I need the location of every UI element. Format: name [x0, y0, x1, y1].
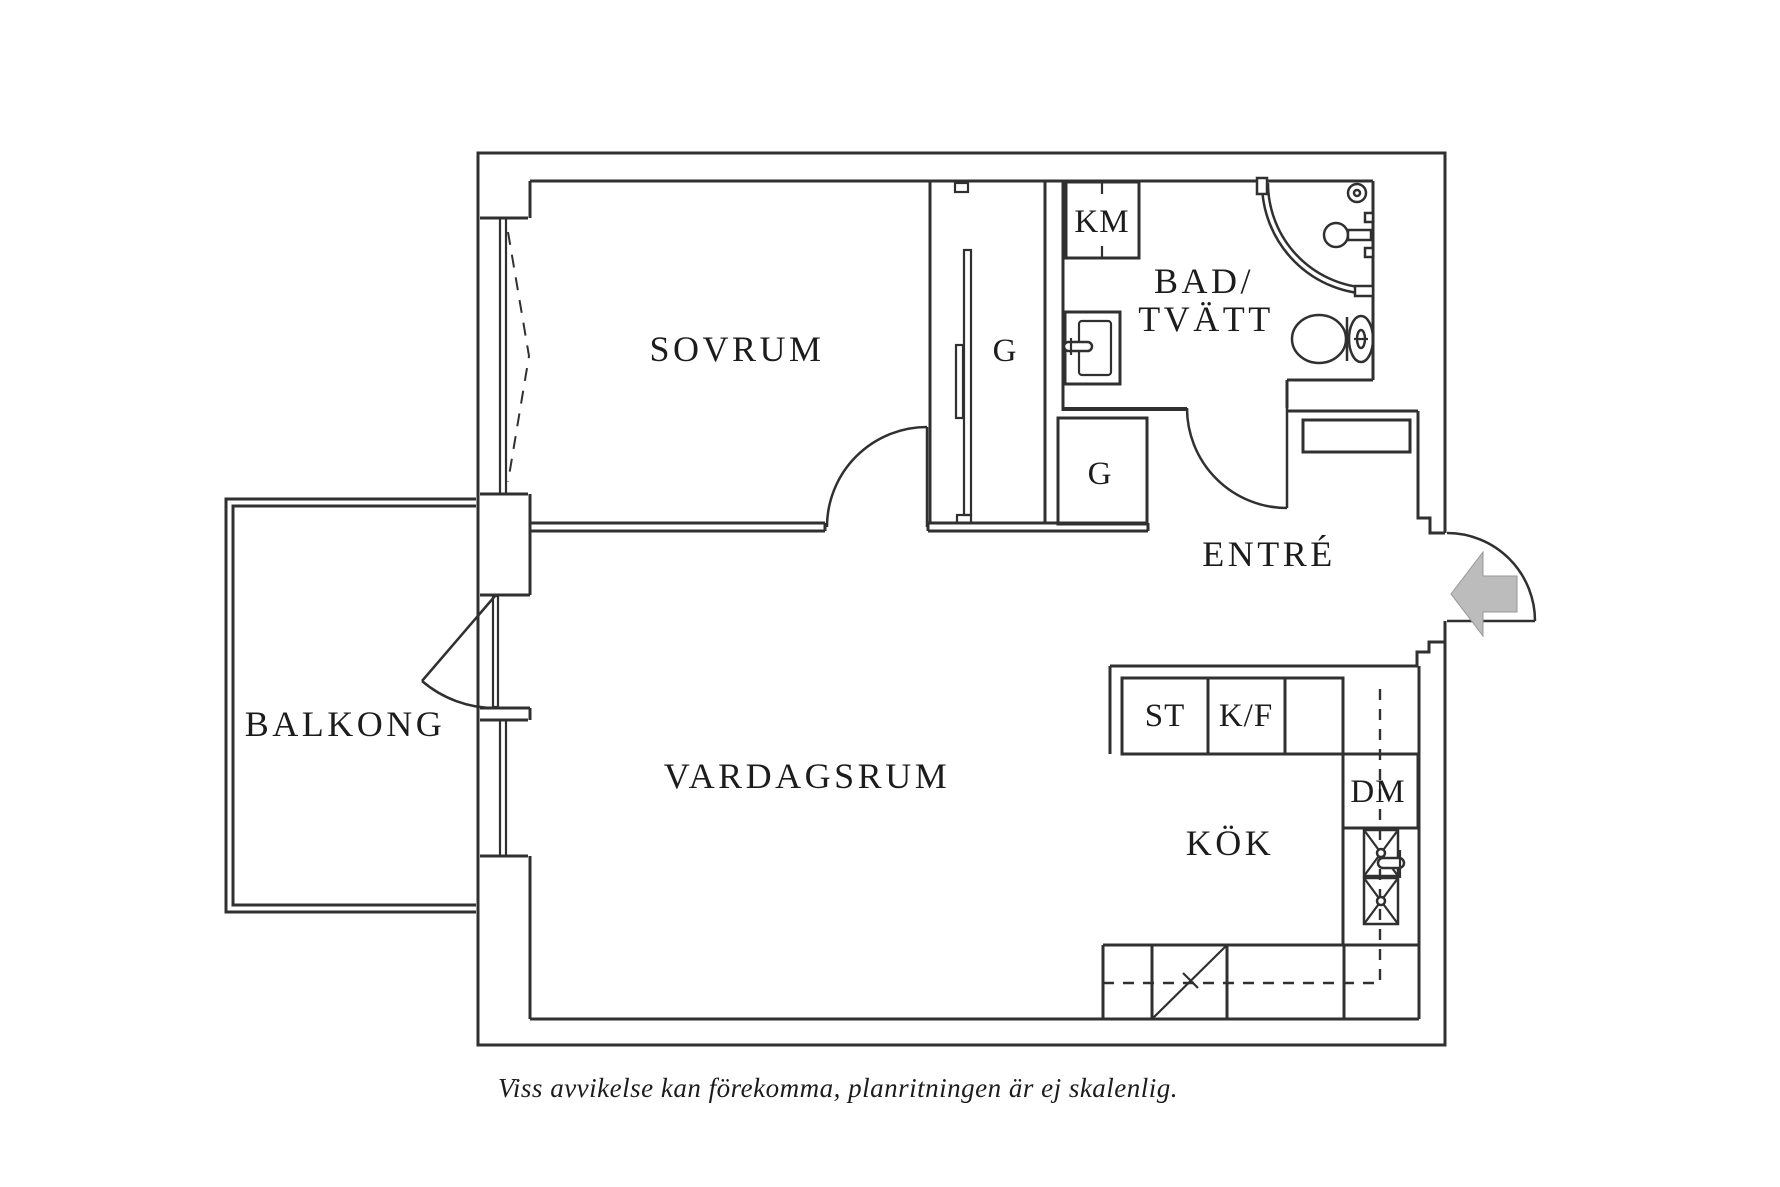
- living-room-window: [480, 720, 528, 856]
- shower-mixer-icon: [1324, 223, 1348, 247]
- label-bathroom-line2: TVÄTT: [1138, 299, 1273, 339]
- label-bathroom-line1: BAD/: [1154, 261, 1254, 301]
- room-labels: SOVRUM G KM BAD/ TVÄTT G ENTRÉ BALKONG V…: [245, 204, 1406, 1103]
- entry-arrow-icon: [1451, 552, 1517, 636]
- hall-shelf: [1303, 420, 1410, 452]
- label-wardrobe-bedroom: G: [993, 333, 1018, 369]
- bathroom-door: [1187, 408, 1287, 508]
- floor-plan-page: SOVRUM G KM BAD/ TVÄTT G ENTRÉ BALKONG V…: [0, 0, 1780, 1187]
- label-wardrobe-hall: G: [1088, 456, 1113, 492]
- label-washing-machine: KM: [1074, 204, 1129, 240]
- sink-faucet-icon: [1064, 342, 1092, 351]
- label-bedroom: SOVRUM: [649, 329, 824, 369]
- bathroom-sink: [1064, 312, 1120, 384]
- wardrobe-track-notch: [955, 183, 968, 192]
- label-living-room: VARDAGSRUM: [664, 756, 950, 796]
- counter-cabinet: [1285, 678, 1343, 754]
- bedroom-wardrobe-sliding-doors: [956, 250, 971, 523]
- entry-door: [1447, 533, 1535, 636]
- label-balcony: BALKONG: [245, 704, 446, 744]
- kitchen-sink-unit: [1364, 830, 1404, 924]
- label-pantry: ST: [1145, 698, 1186, 734]
- balcony-door: [422, 595, 530, 708]
- window-opening-dashes: [508, 232, 529, 482]
- interior-walls: [530, 181, 1445, 1019]
- bedroom-window: [480, 218, 529, 494]
- exterior-walls: [478, 153, 1445, 1045]
- bedroom-door: [827, 427, 927, 527]
- shower-drain-icon: [1348, 184, 1366, 202]
- label-dishwasher: DM: [1350, 774, 1405, 810]
- label-fridge-freezer: K/F: [1219, 698, 1273, 734]
- caption-disclaimer: Viss avvikelse kan förekomma, planritnin…: [498, 1073, 1178, 1103]
- label-entry: ENTRÉ: [1202, 534, 1335, 574]
- toilet: [1292, 315, 1373, 363]
- shower: [1257, 178, 1373, 296]
- label-kitchen: KÖK: [1186, 823, 1275, 863]
- floor-plan-drawing: SOVRUM G KM BAD/ TVÄTT G ENTRÉ BALKONG V…: [0, 0, 1780, 1187]
